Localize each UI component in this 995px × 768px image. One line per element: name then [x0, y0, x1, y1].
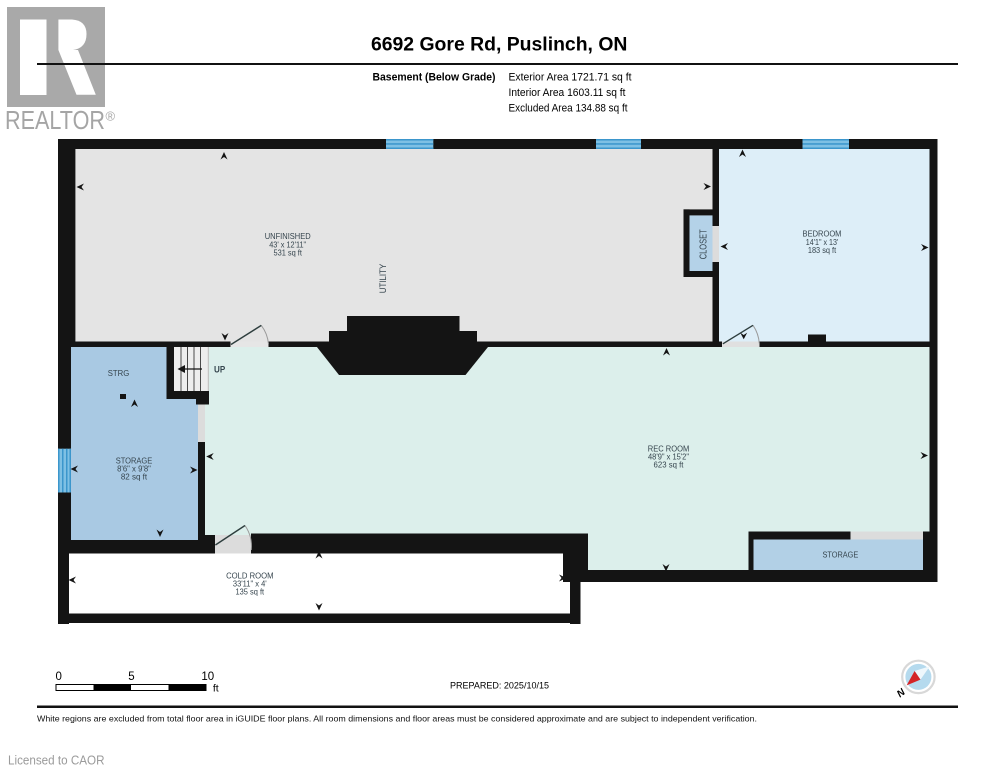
- svg-text:623 sq ft: 623 sq ft: [654, 460, 684, 470]
- svg-text:Interior Area 1603.11 sq ft: Interior Area 1603.11 sq ft: [509, 87, 626, 99]
- svg-text:PREPARED: 2025/10/15: PREPARED: 2025/10/15: [450, 681, 549, 692]
- svg-text:REALTOR: REALTOR: [5, 107, 105, 135]
- svg-text:UTILITY: UTILITY: [378, 263, 389, 293]
- svg-text:5: 5: [128, 671, 134, 683]
- svg-text:STORAGE: STORAGE: [823, 550, 859, 560]
- svg-text:6692 Gore Rd, Puslinch, ON: 6692 Gore Rd, Puslinch, ON: [371, 34, 628, 56]
- svg-text:STRG: STRG: [108, 368, 130, 378]
- svg-text:10: 10: [201, 671, 214, 683]
- svg-text:Licensed to CAOR: Licensed to CAOR: [8, 754, 105, 768]
- svg-text:0: 0: [55, 671, 61, 683]
- svg-text:183 sq ft: 183 sq ft: [808, 245, 837, 255]
- svg-text:135 sq ft: 135 sq ft: [236, 586, 265, 596]
- svg-text:®: ®: [106, 109, 116, 124]
- svg-text:Basement (Below Grade): Basement (Below Grade): [373, 71, 496, 83]
- svg-text:ft: ft: [213, 683, 219, 695]
- svg-text:CLOSET: CLOSET: [697, 229, 709, 259]
- svg-text:531 sq ft: 531 sq ft: [273, 248, 302, 258]
- svg-text:UP: UP: [214, 364, 225, 374]
- svg-text:Exterior Area 1721.71 sq ft: Exterior Area 1721.71 sq ft: [509, 71, 632, 83]
- svg-text:White regions are excluded fro: White regions are excluded from total fl…: [37, 713, 757, 723]
- svg-text:Excluded Area 134.88 sq ft: Excluded Area 134.88 sq ft: [509, 102, 628, 114]
- svg-text:82 sq ft: 82 sq ft: [121, 472, 148, 482]
